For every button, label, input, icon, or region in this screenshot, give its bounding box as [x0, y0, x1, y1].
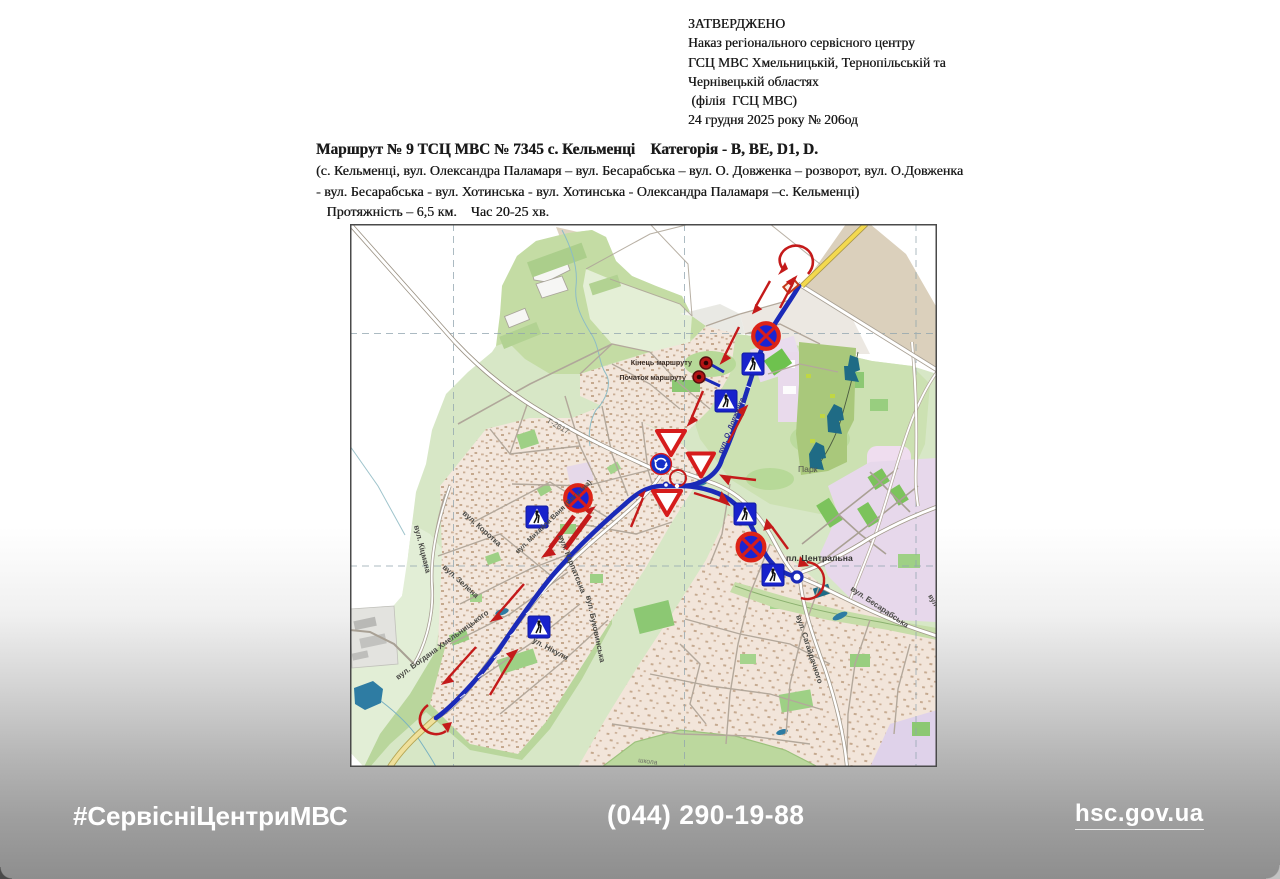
svg-text:пл. Центральна: пл. Центральна — [786, 553, 853, 563]
svg-text:Кінець маршруту: Кінець маршруту — [631, 358, 692, 367]
svg-text:Парк: Парк — [798, 464, 818, 474]
svg-text:Початок маршруту: Початок маршруту — [619, 373, 686, 382]
